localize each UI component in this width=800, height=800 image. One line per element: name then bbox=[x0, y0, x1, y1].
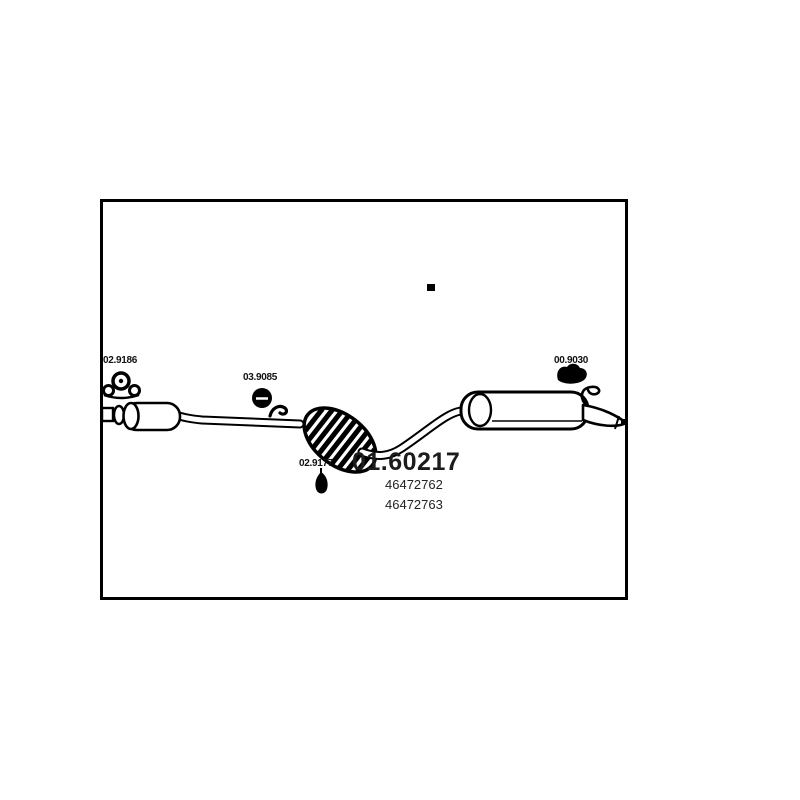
oe-number-primary: 46472762 bbox=[385, 478, 443, 491]
reference-dot bbox=[427, 284, 435, 291]
mount-label-front: 02.9186 bbox=[103, 356, 137, 366]
middle-hanger-icon bbox=[252, 388, 286, 416]
mount-label-middle: 03.9085 bbox=[243, 373, 277, 383]
rear-silencer bbox=[461, 392, 588, 429]
front-rubber-mount-icon bbox=[104, 373, 140, 398]
tailpipe bbox=[583, 405, 627, 429]
flex-hanger-icon bbox=[315, 468, 327, 494]
exhaust-diagram bbox=[0, 0, 800, 800]
rear-rubber-mount-icon bbox=[557, 364, 587, 384]
front-catalyst-body bbox=[102, 403, 180, 430]
rear-hook-bracket bbox=[582, 387, 599, 404]
mount-label-flex: 02.9177 bbox=[299, 459, 333, 469]
catalog-page: 02.9186 03.9085 00.9030 02.9177 01.60217… bbox=[0, 0, 800, 800]
front-pipe bbox=[172, 414, 300, 424]
main-part-number: 01.60217 bbox=[352, 449, 460, 477]
mount-label-rear: 00.9030 bbox=[554, 356, 588, 366]
oe-number-secondary: 46472763 bbox=[385, 498, 443, 511]
